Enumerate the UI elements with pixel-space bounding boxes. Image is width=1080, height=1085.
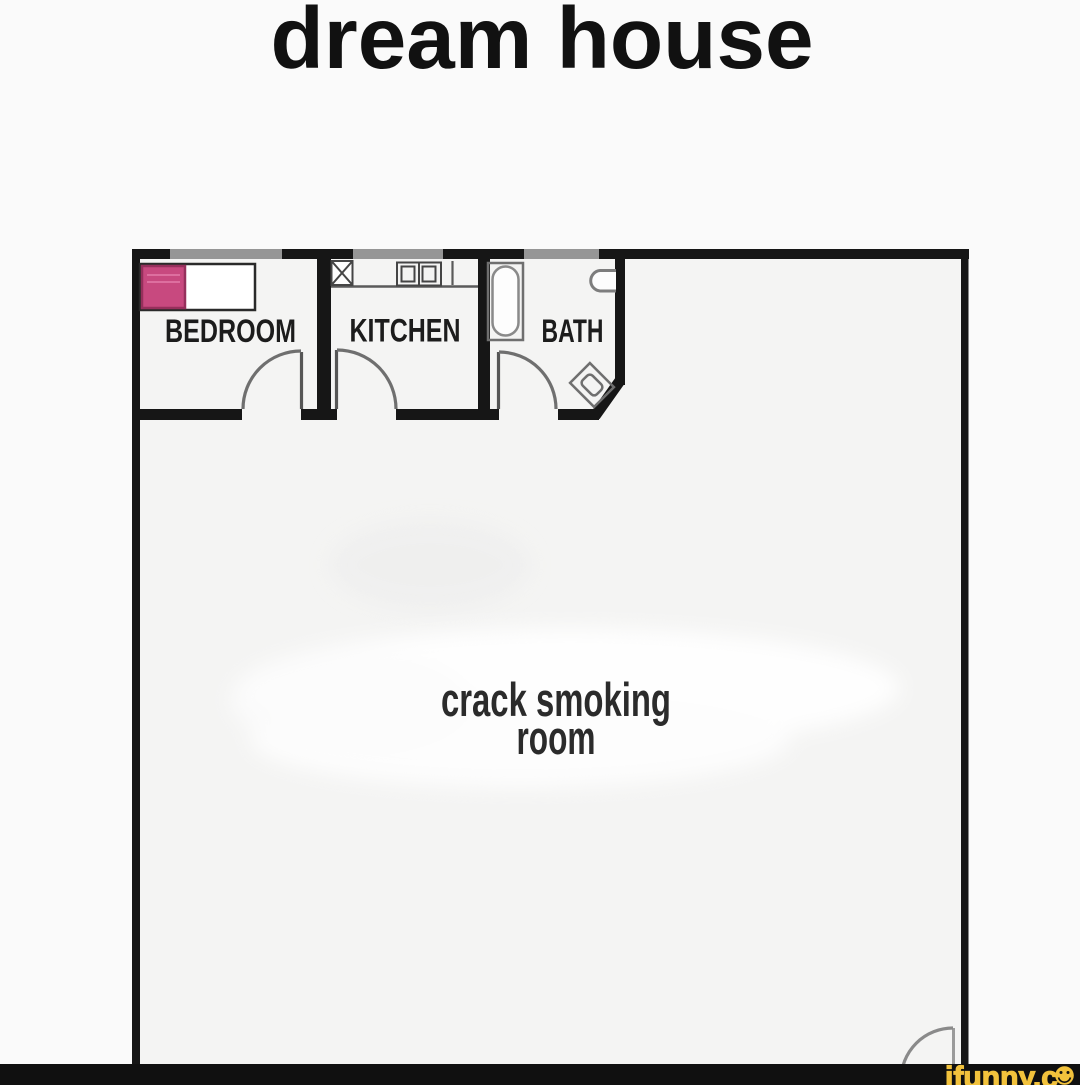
svg-text:KITCHEN: KITCHEN [350,313,461,349]
svg-text:room: room [517,711,596,764]
svg-text:dream house: dream house [271,0,814,87]
svg-text:BATH: BATH [542,313,604,349]
svg-text:ifunny.c: ifunny.c [945,1061,1058,1085]
svg-text:BEDROOM: BEDROOM [165,313,296,349]
